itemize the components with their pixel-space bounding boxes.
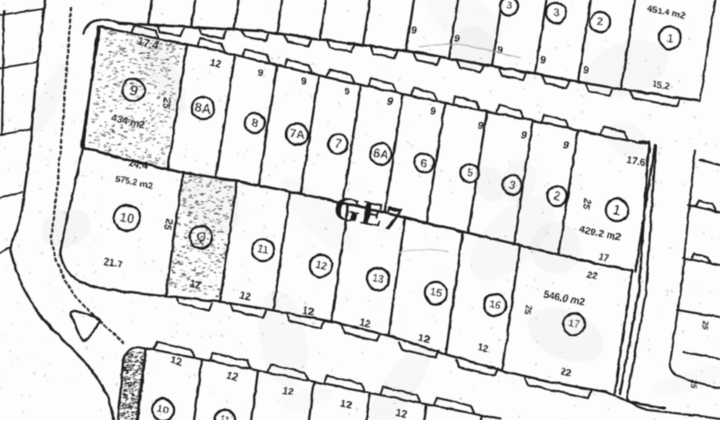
svg-text:13: 13 — [371, 272, 385, 286]
svg-text:12: 12 — [314, 259, 328, 273]
svg-text:16: 16 — [488, 298, 502, 312]
svg-text:7A: 7A — [288, 126, 306, 143]
svg-text:25: 25 — [522, 304, 534, 316]
svg-text:17: 17 — [598, 251, 610, 263]
svg-text:10: 10 — [119, 209, 136, 226]
svg-text:11: 11 — [219, 414, 232, 420]
svg-text:10: 10 — [156, 403, 170, 417]
svg-text:15: 15 — [429, 286, 443, 300]
svg-text:8A: 8A — [194, 99, 214, 117]
svg-text:11: 11 — [256, 243, 270, 257]
